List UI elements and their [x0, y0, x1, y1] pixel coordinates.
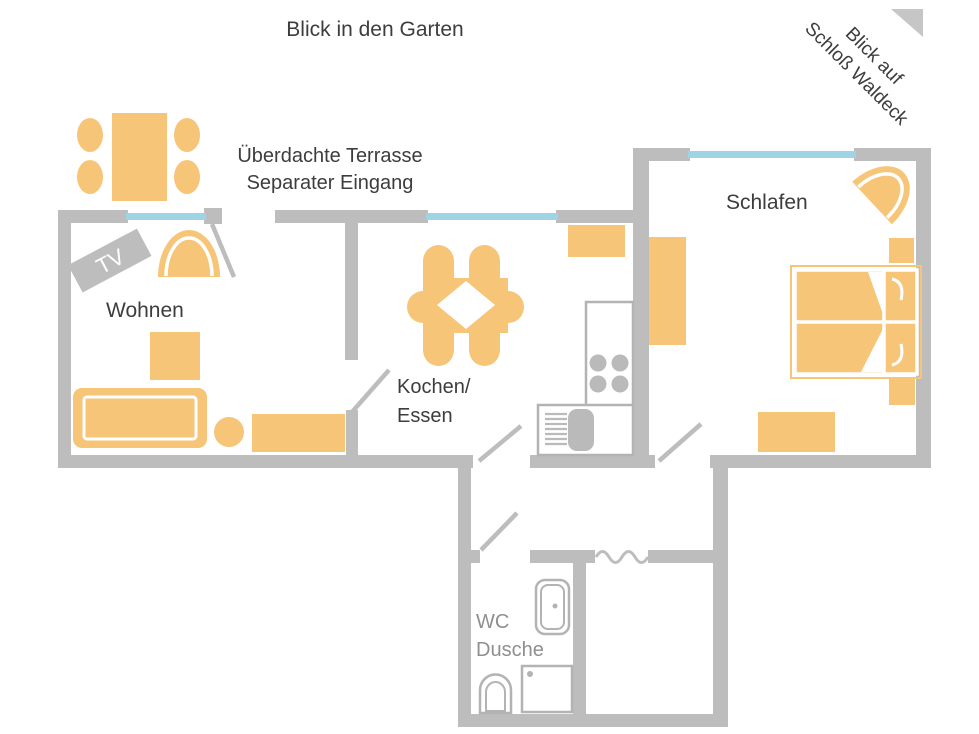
garden-view-label: Blick in den Garten [260, 18, 490, 42]
door-hall-bedroom [659, 424, 701, 461]
dining-chair-icon [423, 245, 454, 278]
shower-icon [522, 666, 572, 712]
kitchen-label-line1: Kochen/ [397, 373, 470, 402]
living-room-furniture: TV [68, 229, 345, 452]
terrace-label-line1: Überdachte Terrasse [223, 143, 437, 170]
terrace-chair-icon [174, 160, 200, 194]
dining-chair-icon [423, 333, 454, 366]
sink-basin-icon [568, 409, 594, 451]
curtain-squiggle-icon [596, 552, 648, 563]
window-bedroom [688, 151, 856, 158]
bathroom-label-line1: WC [476, 608, 544, 636]
view-direction-triangle-icon [891, 9, 923, 37]
wardrobe-icon [649, 237, 686, 345]
sideboard-icon [252, 414, 345, 452]
door-kitchen-hall [479, 426, 521, 461]
dining-chair-icon [469, 333, 500, 366]
terrace-label: Überdachte Terrasse Separater Eingang [223, 143, 437, 197]
appliance-vent-icon [545, 414, 567, 444]
double-bed-icon [791, 266, 921, 378]
window-living [126, 213, 206, 220]
door-hall-bath [481, 513, 517, 550]
terrace-label-line2: Separater Eingang [223, 170, 437, 197]
floorplan-canvas: TV [0, 0, 979, 734]
terrace-dining-set [77, 113, 200, 201]
kitchen-counter-icon [568, 225, 625, 257]
armchair-icon [158, 230, 220, 277]
coffee-table-icon [150, 332, 200, 380]
kitchen-label: Kochen/ Essen [397, 373, 470, 431]
sofa-icon [73, 388, 207, 448]
terrace-chair-icon [77, 118, 103, 152]
kitchen-label-line2: Essen [397, 402, 470, 431]
bathroom-label: WC Dusche [476, 608, 544, 664]
terrace-chair-icon [77, 160, 103, 194]
nightstand-icon [889, 238, 914, 263]
dining-chair-icon [508, 291, 524, 323]
toilet-icon [480, 675, 511, 713]
terrace-table-icon [112, 113, 167, 201]
door-living-kitchen [352, 370, 389, 412]
dining-chair-icon [407, 291, 423, 323]
living-room-label: Wohnen [106, 299, 184, 323]
bathroom-label-line2: Dusche [476, 636, 544, 664]
tv-icon: TV [68, 229, 151, 293]
nightstand-icon [889, 379, 915, 405]
pouf-icon [214, 417, 244, 447]
bedroom-label: Schlafen [726, 191, 808, 215]
window-kitchen [426, 213, 558, 220]
bed-bench-icon [758, 412, 835, 452]
bedroom-chair-icon [852, 152, 924, 224]
dining-chair-icon [469, 245, 500, 278]
terrace-chair-icon [174, 118, 200, 152]
